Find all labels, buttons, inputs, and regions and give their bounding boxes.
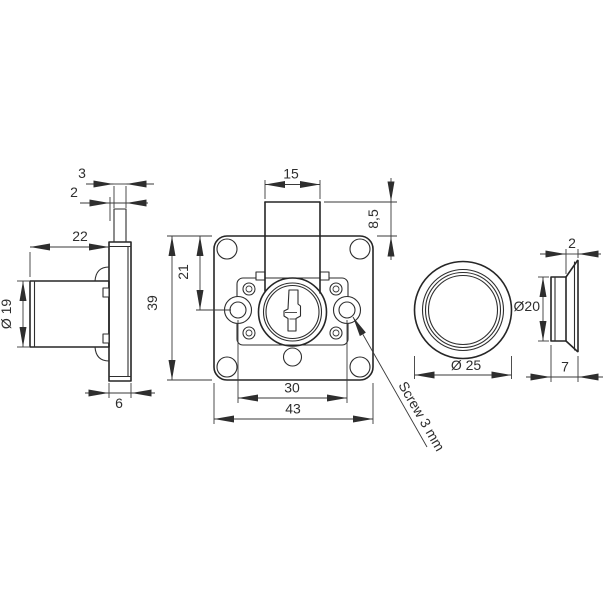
corner-scallop <box>350 357 370 377</box>
lock-cylinder <box>259 278 327 346</box>
bolt-front <box>265 202 320 293</box>
bolt-guide-tab <box>256 272 265 280</box>
dim-housing-length: 22 <box>30 228 109 277</box>
corner-scallop <box>217 239 237 259</box>
dim-bolt-extension: 8,5 <box>324 178 397 260</box>
dim-plate-height-label: 39 <box>144 295 160 311</box>
dim-bolt-thickness-label: 3 <box>78 165 86 181</box>
dim-housing-length-label: 22 <box>72 228 88 244</box>
dim-bolt-thickness: 3 <box>78 165 154 208</box>
dim-hole-center-offset-label: 21 <box>175 264 191 280</box>
lock-side-view: 3 2 22 Ø 19 6 <box>0 165 155 411</box>
lock-front-view: 15 8,5 21 39 30 <box>144 166 448 454</box>
screw-callout-label: Screw 3 mm <box>395 379 448 454</box>
keyway <box>284 290 301 331</box>
dim-rosette-bore-diameter: Ø20 <box>514 277 549 341</box>
dim-bolt-plate-offset-label: 2 <box>70 184 78 200</box>
bottom-fillet <box>95 347 109 361</box>
dim-hole-center-offset: 21 <box>175 236 231 310</box>
dim-hole-spacing: 30 <box>238 320 347 403</box>
dim-rosette-rim-width: 2 <box>540 235 601 274</box>
bolt-guide-tab <box>320 272 329 280</box>
side-lug <box>103 288 109 297</box>
dim-faceplate-thickness: 6 <box>85 383 155 411</box>
rosette-front-view: Ø 25 <box>415 262 512 380</box>
dim-bolt-extension-label: 8,5 <box>365 209 381 229</box>
dim-faceplate-thickness-label: 6 <box>115 395 123 411</box>
corner-scallop <box>217 357 237 377</box>
technical-drawing: 3 2 22 Ø 19 6 <box>0 0 610 610</box>
mount-hole <box>230 302 246 318</box>
drawing-canvas: 3 2 22 Ø 19 6 <box>0 0 610 610</box>
corner-scallop <box>350 239 370 259</box>
dim-bolt-width: 15 <box>265 166 320 200</box>
dim-rosette-outer-diameter: Ø 25 <box>415 356 512 379</box>
dim-rosette-outer-diameter-label: Ø 25 <box>451 357 482 373</box>
rosette-side-view: 2 Ø20 7 <box>514 235 603 382</box>
top-fillet <box>95 267 109 281</box>
dim-rosette-depth-label: 7 <box>561 359 569 375</box>
inner-plate <box>237 278 348 345</box>
dim-housing-diameter: Ø 19 <box>0 281 29 347</box>
dim-rosette-bore-diameter-label: Ø20 <box>514 298 541 314</box>
mount-hole <box>339 302 355 318</box>
dim-bolt-plate-offset: 2 <box>70 184 148 221</box>
dim-plate-height: 39 <box>144 236 212 380</box>
dim-plate-width-label: 43 <box>285 401 301 417</box>
bottom-hole <box>284 348 302 366</box>
dim-rosette-depth: 7 <box>526 345 603 382</box>
rosette-body <box>551 277 566 341</box>
dim-bolt-width-label: 15 <box>283 166 299 182</box>
dim-housing-diameter-label: Ø 19 <box>0 299 14 330</box>
side-lug <box>103 334 109 343</box>
dim-hole-spacing-label: 30 <box>284 380 300 396</box>
housing-body <box>30 281 109 347</box>
rosette-bore <box>429 276 498 345</box>
dim-rosette-rim-width-label: 2 <box>568 235 576 251</box>
